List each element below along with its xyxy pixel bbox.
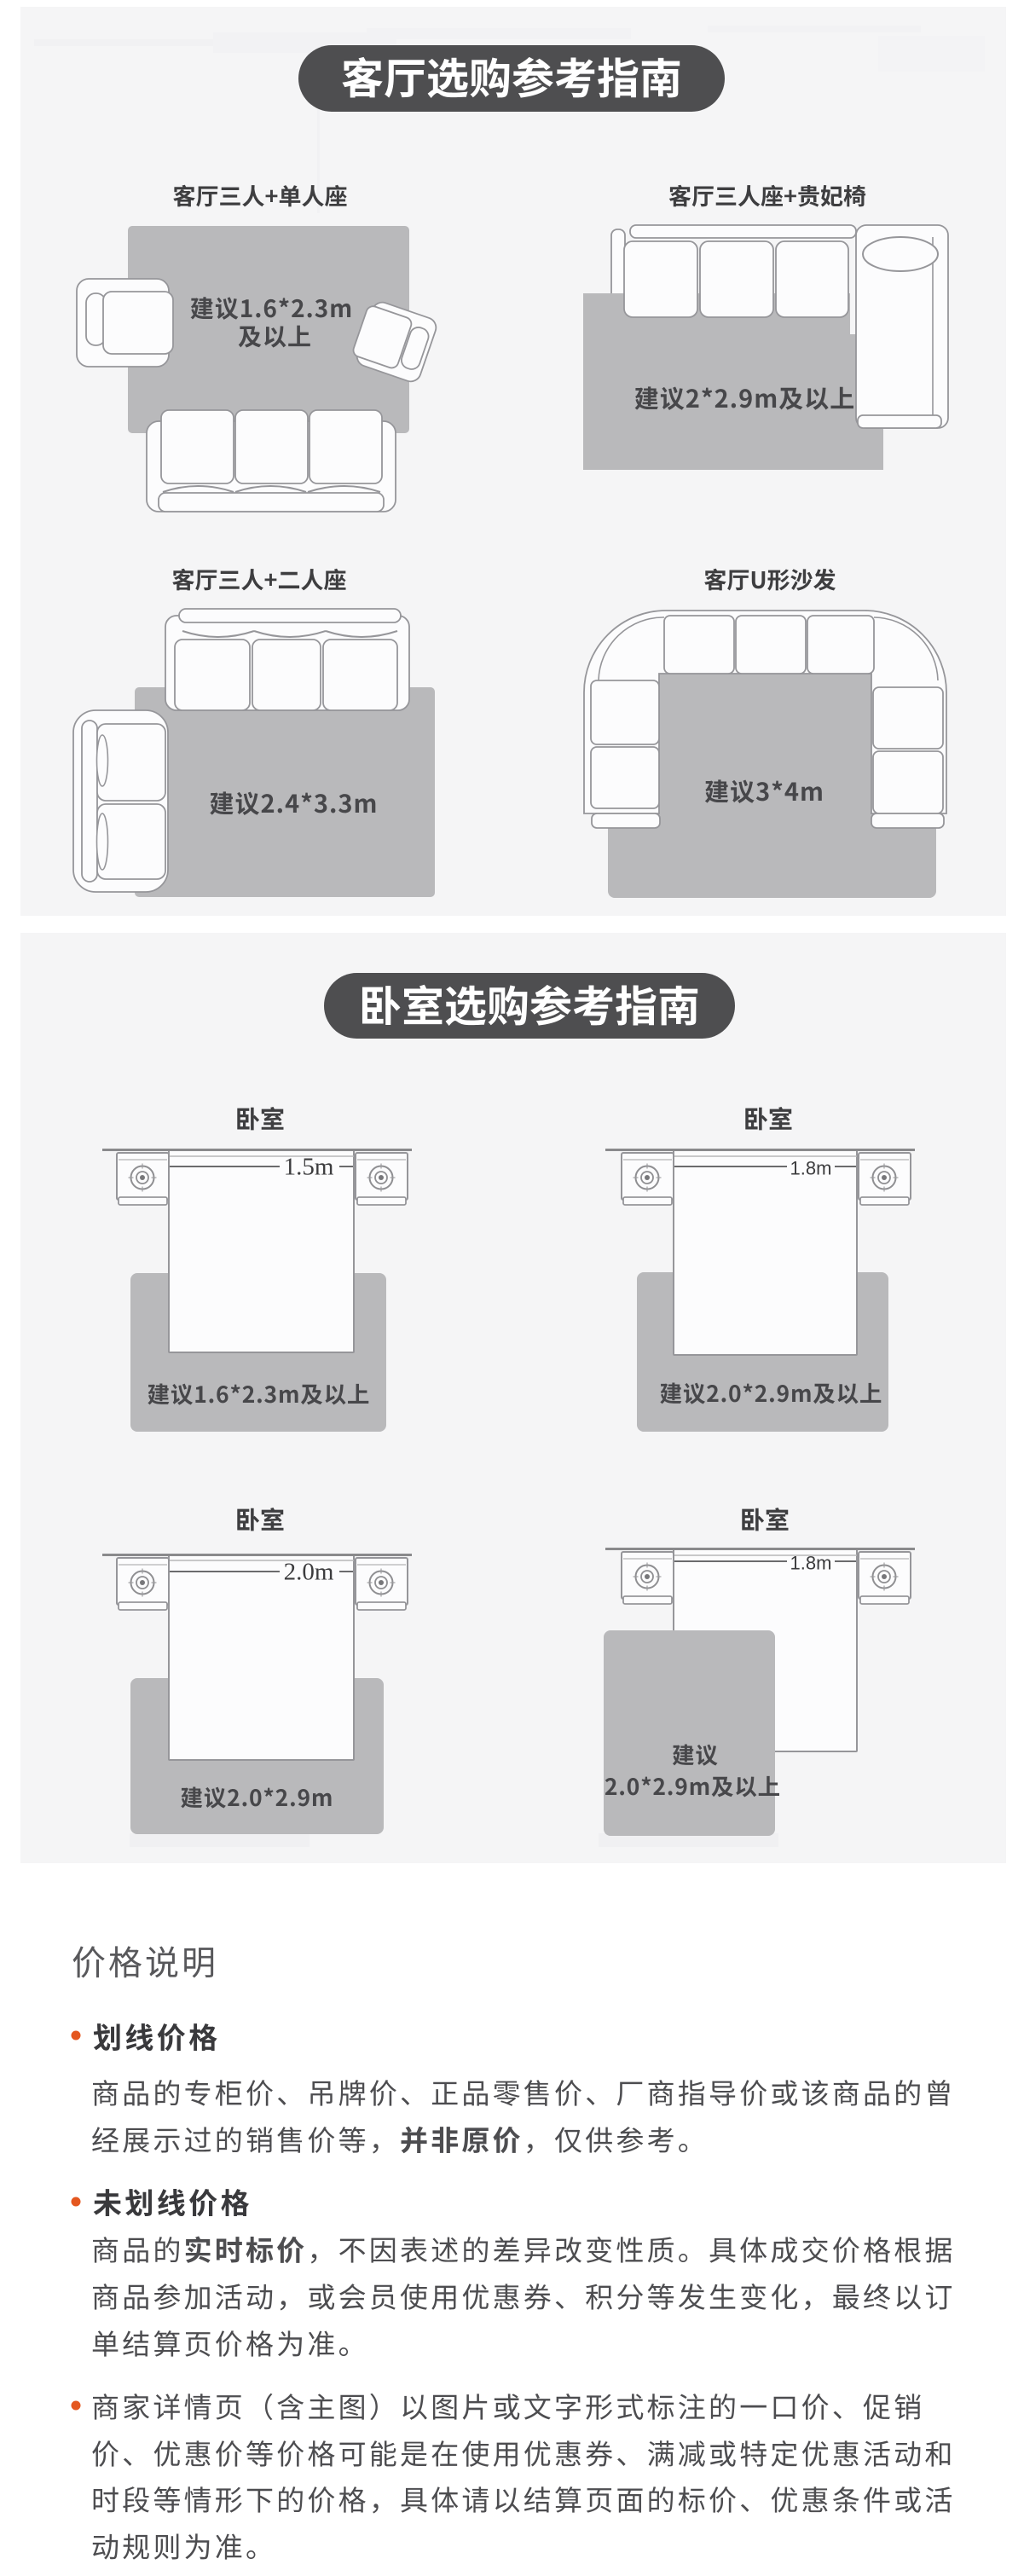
svg-text:1.5m: 1.5m: [284, 1154, 334, 1181]
svg-text:1.8m: 1.8m: [790, 1553, 832, 1574]
svg-text:2.0m: 2.0m: [284, 1559, 334, 1586]
svg-text:1.8m: 1.8m: [790, 1158, 832, 1179]
